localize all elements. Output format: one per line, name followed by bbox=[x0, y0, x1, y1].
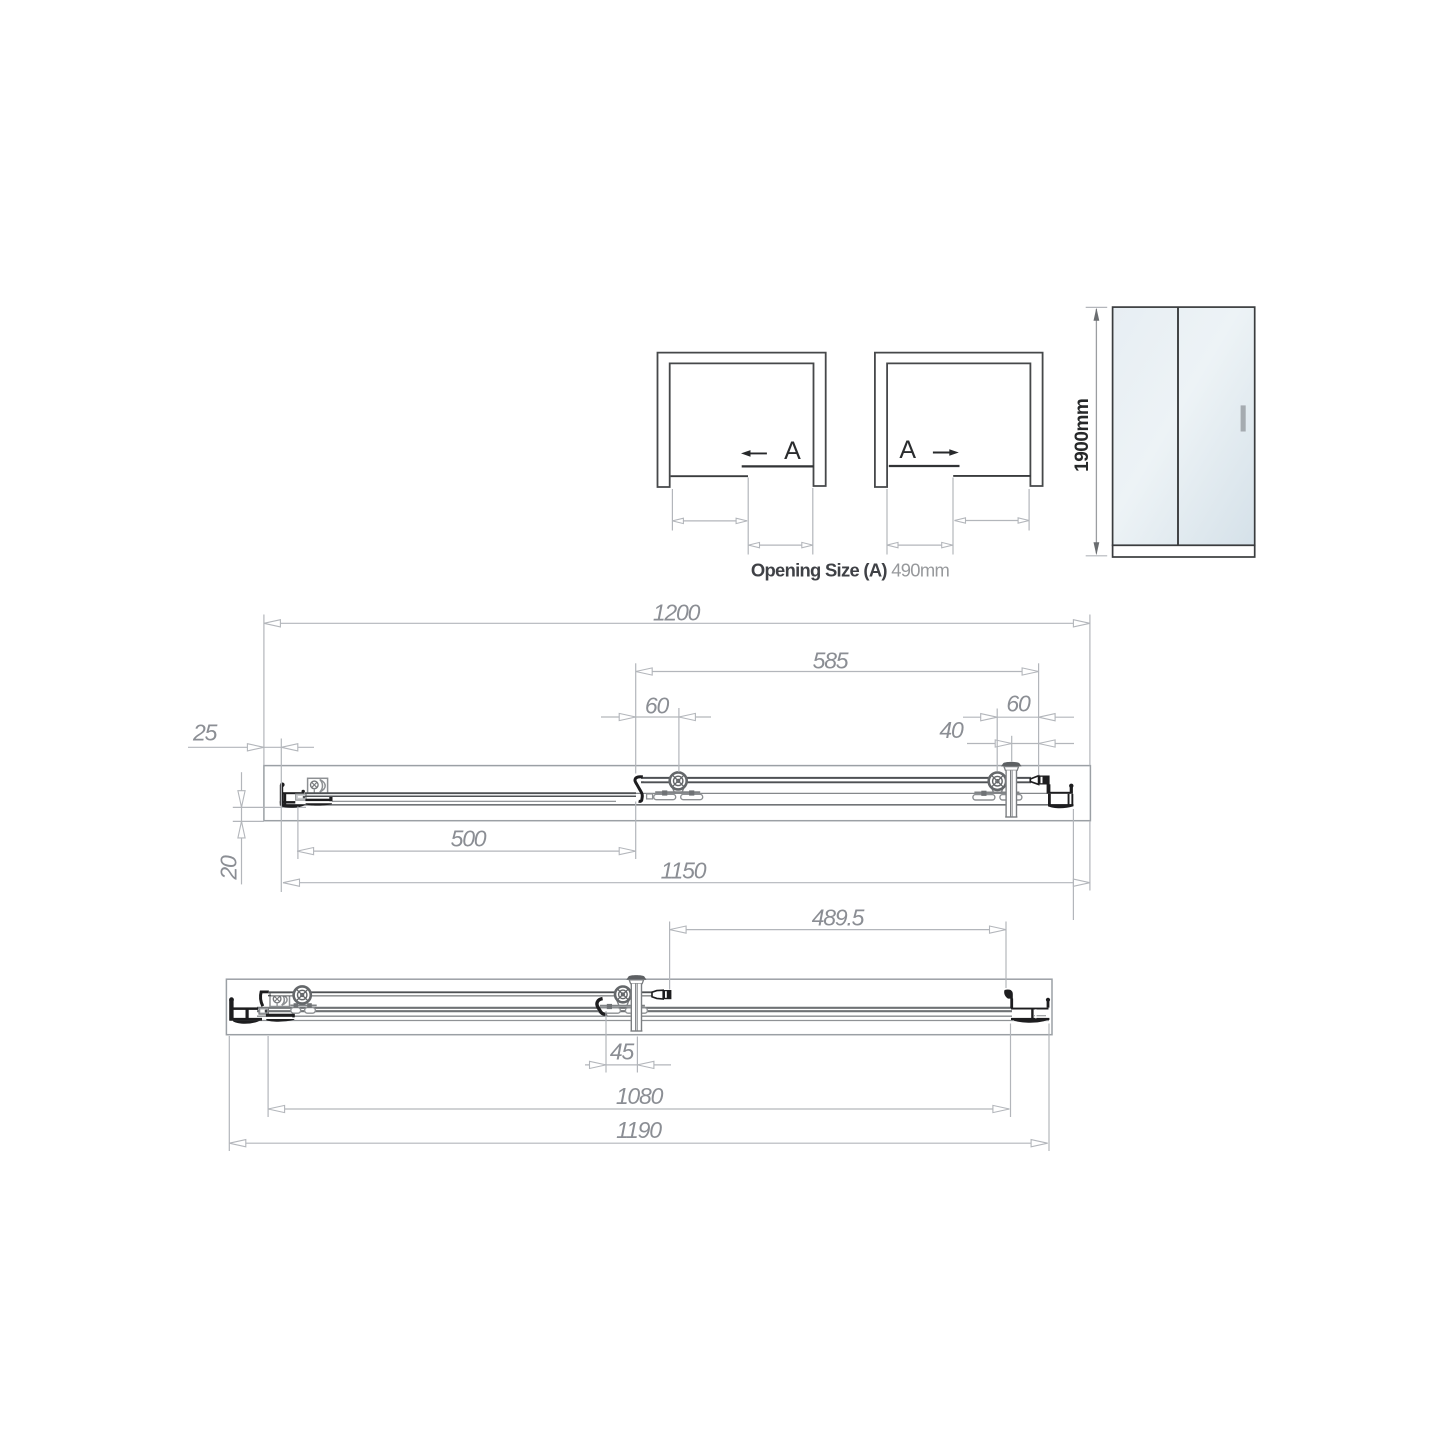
svg-text:1200: 1200 bbox=[653, 599, 701, 625]
svg-text:1150: 1150 bbox=[661, 858, 707, 884]
svg-text:40: 40 bbox=[939, 717, 964, 743]
svg-text:A: A bbox=[899, 436, 916, 464]
svg-text:25: 25 bbox=[192, 720, 218, 746]
svg-text:489.5: 489.5 bbox=[812, 905, 865, 931]
svg-text:20: 20 bbox=[216, 855, 242, 881]
svg-text:Opening Size (A) 490mm: Opening Size (A) 490mm bbox=[751, 560, 950, 581]
svg-text:60: 60 bbox=[645, 692, 670, 718]
svg-text:500: 500 bbox=[451, 825, 487, 851]
svg-text:585: 585 bbox=[813, 647, 849, 673]
svg-text:1900mm: 1900mm bbox=[1072, 399, 1093, 472]
svg-text:A: A bbox=[784, 437, 801, 465]
svg-text:1080: 1080 bbox=[616, 1083, 664, 1109]
svg-text:45: 45 bbox=[610, 1038, 635, 1064]
svg-text:1190: 1190 bbox=[616, 1117, 662, 1143]
svg-text:60: 60 bbox=[1006, 690, 1031, 716]
